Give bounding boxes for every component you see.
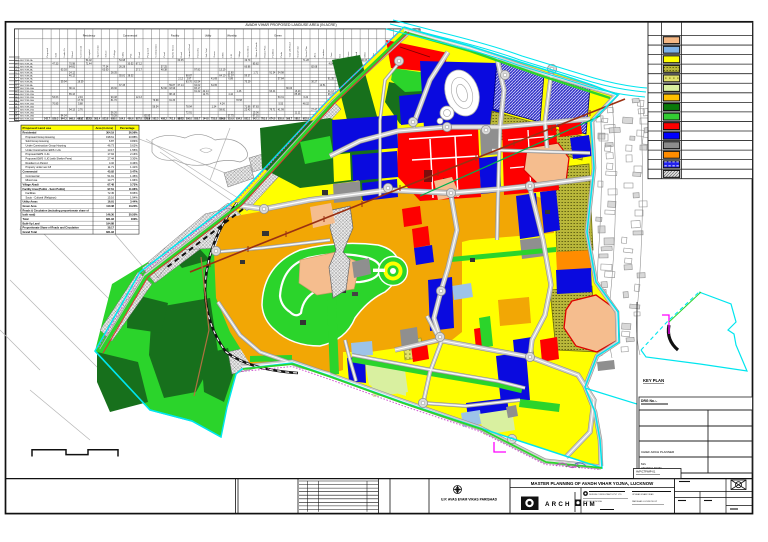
svg-text:674.0: 674.0 [269, 118, 276, 121]
svg-text:844.3: 844.3 [61, 118, 68, 121]
svg-text:SECTOR-15A: SECTOR-15A [20, 102, 34, 105]
svg-text:85.08: 85.08 [295, 93, 302, 96]
svg-text:858.7: 858.7 [194, 118, 201, 121]
svg-text:Proportionate Share of Roads a: Proportionate Share of Roads and Circula… [23, 226, 80, 230]
svg-text:CHIEF ARCH PLANNER: CHIEF ARCH PLANNER [641, 450, 675, 454]
svg-text:64.65: 64.65 [211, 84, 218, 87]
svg-text:72.91: 72.91 [186, 112, 193, 115]
svg-text:5.53: 5.53 [278, 102, 283, 105]
svg-text:41.99: 41.99 [278, 109, 285, 112]
svg-text:590.0: 590.0 [186, 118, 193, 121]
svg-text:56.54: 56.54 [153, 105, 160, 108]
svg-text:Green Area: Green Area [23, 204, 37, 208]
svg-text:79.99: 79.99 [153, 99, 160, 102]
svg-text:966.5: 966.5 [69, 118, 76, 121]
svg-text:Roads & Circulation (including: Roads & Circulation (including proportio… [23, 208, 89, 212]
svg-text:18.39: 18.39 [77, 81, 84, 84]
svg-text:79.71: 79.71 [269, 109, 276, 112]
svg-text:UP AVAS EVAM VIKAS: UP AVAS EVAM VIKAS [632, 493, 654, 496]
svg-text:855.9: 855.9 [278, 118, 285, 121]
svg-text:SECTOR-1A: SECTOR-1A [20, 59, 33, 62]
svg-text:Area (in Acre): Area (in Acre) [95, 126, 113, 130]
svg-text:Constructions: Constructions [155, 43, 158, 57]
svg-text:Sector Plan: Sector Plan [305, 45, 308, 57]
svg-text:Socio - Cultural (Religious): Socio - Cultural (Religious) [26, 195, 57, 199]
svg-text:781.0: 781.0 [261, 118, 268, 121]
svg-text:146.30: 146.30 [106, 213, 114, 217]
svg-text:60.35: 60.35 [178, 59, 185, 62]
svg-text:Facilities: Facilities [26, 191, 37, 195]
svg-text:SECTOR-9A: SECTOR-9A [20, 84, 33, 87]
svg-text:51.91: 51.91 [108, 174, 115, 178]
svg-text:38.02: 38.02 [128, 75, 135, 78]
svg-text:194.88: 194.88 [106, 221, 114, 225]
svg-text:Other: Other [364, 52, 367, 58]
svg-text:4.32: 4.32 [109, 161, 115, 165]
svg-text:LIG: LIG [231, 54, 233, 58]
svg-text:Hospital: Hospital [88, 49, 91, 57]
svg-text:1.41%: 1.41% [130, 165, 138, 169]
svg-text:SECTOR 44 NOIDA: SECTOR 44 NOIDA [583, 500, 602, 503]
svg-text:50.31: 50.31 [278, 96, 285, 99]
svg-text:5.73%: 5.73% [130, 182, 138, 186]
svg-text:Hierarchy: Hierarchy [197, 47, 200, 57]
svg-text:27.17: 27.17 [136, 68, 143, 71]
svg-text:Landuse: Landuse [323, 48, 325, 57]
svg-text:SECTOR-11A: SECTOR-11A [20, 90, 34, 93]
svg-text:1.96%: 1.96% [130, 178, 138, 182]
svg-text:Property under sec 18: Property under sec 18 [26, 165, 52, 169]
svg-text:Area: Area [313, 52, 316, 57]
svg-text:91.33: 91.33 [169, 99, 176, 102]
svg-text:57.84: 57.84 [278, 78, 285, 81]
svg-text:13.19: 13.19 [219, 68, 226, 71]
svg-text:59.94: 59.94 [61, 81, 68, 84]
svg-text:SECTOR-10A: SECTOR-10A [20, 87, 34, 90]
svg-text:82.68: 82.68 [311, 65, 318, 68]
svg-text:406.6: 406.6 [128, 118, 135, 121]
svg-text:10.51: 10.51 [320, 84, 327, 87]
svg-text:38.17: 38.17 [108, 226, 115, 230]
svg-text:Village Abadi: Village Abadi [23, 182, 39, 186]
svg-text:SECTOR-12A: SECTOR-12A [20, 93, 34, 96]
svg-text:15.16: 15.16 [108, 195, 115, 199]
svg-text:SECTOR-4A: SECTOR-4A [20, 68, 33, 71]
svg-text:SECTOR-18A: SECTOR-18A [20, 112, 34, 115]
svg-text:78.58: 78.58 [236, 99, 243, 102]
svg-text:Net: Net [339, 54, 342, 58]
svg-text:1.46: 1.46 [237, 90, 242, 93]
svg-text:542.1: 542.1 [253, 118, 260, 121]
svg-text:110.38: 110.38 [106, 204, 114, 208]
svg-text:Utility Areas: Utility Areas [23, 200, 39, 204]
svg-text:4.44: 4.44 [228, 93, 233, 96]
svg-text:588.1: 588.1 [295, 118, 302, 121]
svg-text:48.38: 48.38 [161, 68, 168, 71]
svg-text:80.11: 80.11 [69, 87, 75, 90]
svg-text:3.44%: 3.44% [130, 200, 138, 204]
svg-text:Buffer Green: Buffer Green [171, 44, 174, 57]
svg-text:SECTOR-8A: SECTOR-8A [20, 81, 33, 84]
svg-text:12.76: 12.76 [203, 93, 210, 96]
svg-text:36.56%: 36.56% [129, 131, 138, 135]
svg-text:Mixed: Mixed [72, 51, 74, 58]
svg-text:16.91: 16.91 [108, 200, 115, 204]
svg-text:Village: Village [239, 50, 241, 57]
svg-text:58.81: 58.81 [219, 109, 226, 112]
svg-text:1.55%: 1.55% [130, 148, 138, 152]
svg-text:Utility: Utility [121, 51, 124, 57]
svg-text:45.92: 45.92 [108, 169, 115, 173]
svg-text:2.16%: 2.16% [130, 152, 138, 156]
svg-text:6.89: 6.89 [228, 78, 233, 81]
svg-text:950.2: 950.2 [178, 118, 185, 121]
svg-text:23.88%: 23.88% [129, 135, 138, 139]
svg-text:Mixed use: Mixed use [26, 178, 38, 182]
svg-text:0.83%: 0.83% [130, 139, 138, 143]
svg-text:Facilities: Facilities [272, 48, 275, 57]
svg-text:1.71: 1.71 [253, 72, 258, 75]
svg-text:1.94%: 1.94% [130, 195, 138, 199]
svg-text:87.12: 87.12 [136, 62, 143, 65]
svg-text:SECTOR-16A: SECTOR-16A [20, 105, 34, 108]
svg-text:831.93: 831.93 [106, 217, 114, 221]
svg-text:94.13: 94.13 [69, 109, 76, 112]
svg-text:28.30: 28.30 [111, 87, 118, 90]
svg-text:MASTER PLANNING OF AVADH VIHAR: MASTER PLANNING OF AVADH VIHAR YOJNA, LU… [531, 481, 654, 486]
svg-text:67.45: 67.45 [119, 84, 126, 87]
svg-text:13.17: 13.17 [108, 148, 115, 152]
svg-text:64.10: 64.10 [219, 75, 226, 78]
svg-text:14.77: 14.77 [108, 178, 115, 182]
svg-text:84.81: 84.81 [69, 65, 76, 68]
svg-text:2.76: 2.76 [78, 109, 83, 112]
svg-text:Sector Area: Sector Area [247, 45, 250, 57]
svg-text:170.8: 170.8 [144, 118, 151, 121]
svg-text:13.24%: 13.24% [129, 204, 138, 208]
svg-text:EWS: EWS [223, 52, 225, 58]
svg-text:164.5: 164.5 [119, 118, 126, 121]
svg-text:502.5: 502.5 [153, 118, 160, 121]
svg-text:Sub Total: Sub Total [205, 48, 208, 58]
svg-text:Built-Up Land: Built-Up Land [23, 221, 40, 225]
svg-text:11.71: 11.71 [108, 165, 115, 169]
svg-text:97.61: 97.61 [108, 187, 115, 191]
svg-text:887.8: 887.8 [136, 118, 143, 121]
svg-text:17.94: 17.94 [108, 152, 115, 156]
svg-text:53.63: 53.63 [52, 96, 59, 99]
svg-text:Residential: Residential [23, 131, 37, 135]
svg-text:Under Construction EWS / LIG: Under Construction EWS / LIG [26, 148, 61, 152]
svg-text:420.7: 420.7 [77, 118, 84, 121]
svg-text:Master Plan: Master Plan [263, 45, 266, 57]
svg-text:598.7: 598.7 [286, 118, 293, 121]
svg-text:72.45: 72.45 [108, 191, 115, 195]
svg-text:SECTOR-7A: SECTOR-7A [20, 78, 33, 81]
svg-text:572.2: 572.2 [86, 118, 93, 121]
svg-text:SECTOR-20A: SECTOR-20A [20, 118, 34, 121]
svg-text:Internal Road: Internal Road [188, 44, 191, 58]
svg-text:519.9: 519.9 [228, 118, 235, 121]
svg-text:1.34: 1.34 [212, 105, 217, 108]
svg-text:5.88: 5.88 [78, 102, 83, 105]
svg-text:61.35: 61.35 [328, 78, 335, 81]
svg-text:Proposed Group Housing: Proposed Group Housing [26, 135, 56, 139]
svg-text:67.14: 67.14 [178, 84, 185, 87]
svg-text:688.0: 688.0 [111, 118, 118, 121]
svg-text:SECTOR-19A: SECTOR-19A [20, 115, 34, 118]
svg-text:ARCH: ARCH [545, 501, 572, 508]
svg-text:929.3: 929.3 [52, 118, 59, 121]
svg-text:701.0: 701.0 [169, 118, 176, 121]
svg-text:6.22: 6.22 [303, 96, 308, 99]
svg-text:1.45%: 1.45% [130, 174, 138, 178]
svg-text:Commercial: Commercial [23, 169, 38, 173]
svg-text:488.2: 488.2 [161, 118, 168, 121]
svg-text:923.8: 923.8 [102, 118, 109, 121]
svg-text:Grand Total: Grand Total [297, 46, 300, 58]
svg-text:PARISHAD LUCKNOW UP: PARISHAD LUCKNOW UP [632, 500, 658, 503]
svg-text:SECTOR-13A: SECTOR-13A [20, 96, 34, 99]
svg-text:SECTOR-2A: SECTOR-2A [20, 62, 33, 65]
svg-text:Proposed: Proposed [46, 47, 49, 57]
svg-text:Worship: Worship [227, 34, 237, 38]
svg-text:2.12: 2.12 [178, 78, 183, 81]
svg-text:71.44: 71.44 [86, 62, 93, 65]
svg-text:63.60: 63.60 [102, 68, 109, 71]
svg-text:DRG No.:-: DRG No.:- [641, 399, 657, 403]
svg-text:85.43: 85.43 [69, 93, 76, 96]
svg-text:30.55%: 30.55% [129, 213, 138, 217]
svg-text:97.83: 97.83 [253, 105, 260, 108]
svg-text:75.29: 75.29 [244, 81, 251, 84]
svg-text:154.9: 154.9 [219, 118, 226, 121]
svg-text:Total with Road: Total with Road [288, 42, 291, 58]
svg-text:55.81: 55.81 [119, 75, 126, 78]
svg-text:63.03: 63.03 [61, 68, 68, 71]
svg-text:48.32: 48.32 [303, 102, 310, 105]
svg-text:41.69: 41.69 [211, 78, 218, 81]
svg-text:59.37: 59.37 [244, 75, 251, 78]
svg-text:11.96%: 11.96% [129, 187, 138, 191]
svg-text:Proposed: Proposed [146, 47, 149, 57]
svg-text:Proposed EWS / LIG (with Shelt: Proposed EWS / LIG (with Shelter Fees) [26, 157, 73, 161]
svg-text:18.99: 18.99 [169, 87, 176, 90]
svg-text:SECTOR-3A: SECTOR-3A [20, 65, 33, 68]
svg-text:52.90: 52.90 [161, 87, 168, 90]
svg-text:Zone: Zone [331, 52, 333, 58]
svg-text:66.86: 66.86 [244, 65, 251, 68]
svg-text:Residency: Residency [83, 34, 96, 38]
svg-text:SECTOR-5A: SECTOR-5A [20, 72, 33, 75]
svg-text:753.8: 753.8 [211, 118, 218, 121]
svg-text:5.62%: 5.62% [130, 144, 138, 148]
svg-text:934.5: 934.5 [236, 118, 243, 121]
svg-text:81.70: 81.70 [111, 99, 118, 102]
svg-text:Utility: Utility [205, 34, 212, 38]
svg-text:DESIGN CONSULTANTS PVT LTD: DESIGN CONSULTANTS PVT LTD [589, 493, 622, 496]
svg-text:Plot: Plot [130, 53, 133, 57]
svg-text:AVP/CTP/MP-01: AVP/CTP/MP-01 [636, 470, 656, 474]
svg-text:Parks: Parks [280, 51, 283, 57]
svg-text:67.48: 67.48 [108, 182, 115, 186]
svg-text:Facility: Facility [171, 34, 180, 38]
svg-text:144.8: 144.8 [203, 118, 210, 121]
svg-text:U.P. AVAS EVAM VIKAS PARISHAD: U.P. AVAS EVAM VIKAS PARISHAD [441, 498, 498, 502]
svg-text:Gross: Gross [347, 51, 350, 58]
svg-text:School: School [106, 50, 108, 57]
svg-text:100%: 100% [131, 217, 138, 221]
svg-text:242.7: 242.7 [44, 118, 51, 121]
svg-text:4.24: 4.24 [220, 102, 225, 105]
svg-text:30.27: 30.27 [311, 81, 318, 84]
svg-text:0.46%: 0.46% [130, 161, 138, 165]
svg-text:304.19: 304.19 [106, 131, 114, 135]
svg-text:27.44: 27.44 [108, 157, 115, 161]
svg-text:Commercial: Commercial [123, 34, 138, 38]
svg-text:Green: Green [213, 51, 216, 58]
svg-text:88.19: 88.19 [169, 93, 176, 96]
svg-text:97.83: 97.83 [194, 68, 201, 71]
svg-text:Under Co: Under Co [63, 47, 66, 57]
svg-text:78.94: 78.94 [186, 105, 193, 108]
svg-text:831.93: 831.93 [106, 230, 114, 234]
svg-text:SECTOR-17A: SECTOR-17A [20, 109, 34, 112]
svg-text:3.30%: 3.30% [130, 157, 138, 161]
svg-text:Green: Green [274, 34, 282, 38]
svg-text:85.82: 85.82 [253, 62, 260, 65]
svg-text:11.11: 11.11 [295, 112, 301, 115]
svg-text:91.22: 91.22 [194, 90, 201, 93]
svg-text:80.06: 80.06 [286, 87, 293, 90]
svg-text:19.79: 19.79 [244, 59, 251, 62]
svg-text:Percentage: Percentage [120, 126, 135, 130]
svg-text:22.43: 22.43 [244, 109, 251, 112]
svg-text:Sport Centre: Sport Centre [96, 44, 99, 57]
svg-text:583.4: 583.4 [94, 118, 101, 121]
svg-text:5.47%: 5.47% [130, 169, 138, 173]
svg-text:Proposed Land use: Proposed Land use [23, 126, 52, 130]
svg-text:Resident un Period: Resident un Period [26, 161, 49, 165]
svg-text:Grand Total: Grand Total [23, 230, 38, 234]
svg-text:71.28: 71.28 [303, 59, 310, 62]
svg-text:College: College [114, 49, 116, 57]
svg-text:built road): built road) [23, 213, 36, 217]
svg-text:KEY PLAN: KEY PLAN [643, 378, 664, 383]
svg-text:AVADH VIHAR PROPOSED LANDUSE A: AVADH VIHAR PROPOSED LANDUSE AREA (IN AC… [245, 23, 336, 27]
svg-text:46.12: 46.12 [69, 75, 76, 78]
svg-text:91.34: 91.34 [269, 72, 276, 75]
svg-text:Share in Roads: Share in Roads [255, 42, 258, 58]
svg-text:198.61: 198.61 [106, 135, 114, 139]
svg-text:Commercial: Commercial [26, 174, 40, 178]
svg-text:93.44: 93.44 [269, 90, 276, 93]
svg-text:46.73: 46.73 [108, 144, 115, 148]
svg-text:54.98: 54.98 [278, 72, 285, 75]
svg-text:30.52: 30.52 [128, 62, 135, 65]
svg-text:54.98: 54.98 [119, 59, 126, 62]
svg-text:Pond: Pond [164, 52, 166, 58]
svg-text:47.33: 47.33 [52, 62, 59, 65]
svg-text:Road: Road [181, 51, 183, 57]
svg-text:SECTOR-14A: SECTOR-14A [20, 99, 34, 102]
svg-text:Total: Total [23, 217, 29, 221]
svg-text:12.13: 12.13 [136, 96, 143, 99]
svg-text:8.95%: 8.95% [130, 191, 138, 195]
svg-text:Under Construction Group Housi: Under Construction Group Housing [26, 144, 67, 148]
svg-text:Sold Group Housing: Sold Group Housing [26, 139, 50, 143]
svg-text:26.28: 26.28 [119, 65, 126, 68]
svg-text:70.85: 70.85 [52, 102, 59, 105]
svg-text:83.70: 83.70 [186, 81, 193, 84]
svg-text:852.1: 852.1 [244, 118, 251, 121]
svg-text:Road: Road [139, 51, 141, 57]
svg-text:SECTOR-6A: SECTOR-6A [20, 75, 33, 78]
svg-text:Commercial: Commercial [80, 45, 83, 57]
svg-text:Facility Area (Public - Semi P: Facility Area (Public - Semi Public) [23, 187, 66, 191]
svg-text:28.35: 28.35 [111, 72, 118, 75]
svg-text:Sold: Sold [56, 52, 58, 57]
svg-text:Proposed EWS / LIG: Proposed EWS / LIG [26, 152, 50, 156]
svg-text:6.87: 6.87 [109, 139, 115, 143]
